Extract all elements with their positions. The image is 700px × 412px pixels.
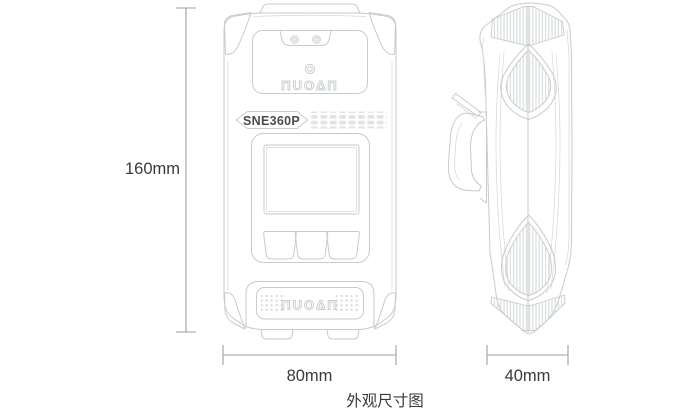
dimension-width: 80mm (223, 345, 396, 385)
button-left (264, 232, 297, 260)
sensor-notch (280, 31, 331, 46)
sensor-left-inner (293, 38, 297, 42)
width-dim-label: 80mm (287, 367, 333, 385)
side-view (448, 3, 572, 333)
grip-upper-kite (506, 50, 550, 113)
brand-logo-top: ΠUOΔΠ (281, 78, 339, 93)
depth-dim-label: 40mm (505, 367, 551, 385)
button-center (295, 232, 328, 260)
dimension-height: 160mm (125, 8, 196, 332)
screen-outer (264, 145, 359, 214)
sensor-left-outer (291, 36, 299, 44)
front-inner-edge-top (254, 15, 366, 16)
sensor-right-inner (315, 38, 319, 42)
speaker-vents (311, 112, 387, 129)
belt-clip (448, 94, 486, 204)
screen-inner (267, 148, 357, 212)
buzzer-inner (308, 67, 313, 72)
front-top-cap (260, 4, 360, 13)
front-mid-panel (252, 134, 370, 263)
clip-lever-inner (457, 104, 477, 119)
foot-left (261, 330, 293, 340)
button-right (327, 232, 360, 260)
front-body-outline (224, 13, 396, 330)
diagram-canvas: ΠUOΔΠ SNE360P ΠUOΔΠ (0, 0, 700, 412)
height-dim-label: 160mm (125, 160, 180, 178)
dimension-depth: 40mm (487, 345, 568, 385)
clip-hook-inner (454, 124, 462, 180)
front-bumper-bottom-left (225, 293, 246, 329)
brand-logo-bottom: ΠUOΔΠ (281, 298, 339, 313)
grip-lower-kite (506, 222, 552, 296)
foot-right (327, 330, 359, 340)
clip-hook (448, 113, 484, 191)
front-view: ΠUOΔΠ SNE360P ΠUOΔΠ (224, 4, 396, 339)
side-inner-edge-right (566, 30, 570, 265)
front-bumper-bottom-right (375, 293, 396, 329)
diagram-caption: 外观尺寸图 (346, 392, 424, 410)
buzzer-outer (305, 64, 314, 73)
sensor-right-outer (313, 36, 321, 44)
model-label: SNE360P (243, 114, 300, 128)
appearance-dimension-diagram: ΠUOΔΠ SNE360P ΠUOΔΠ (0, 0, 700, 412)
